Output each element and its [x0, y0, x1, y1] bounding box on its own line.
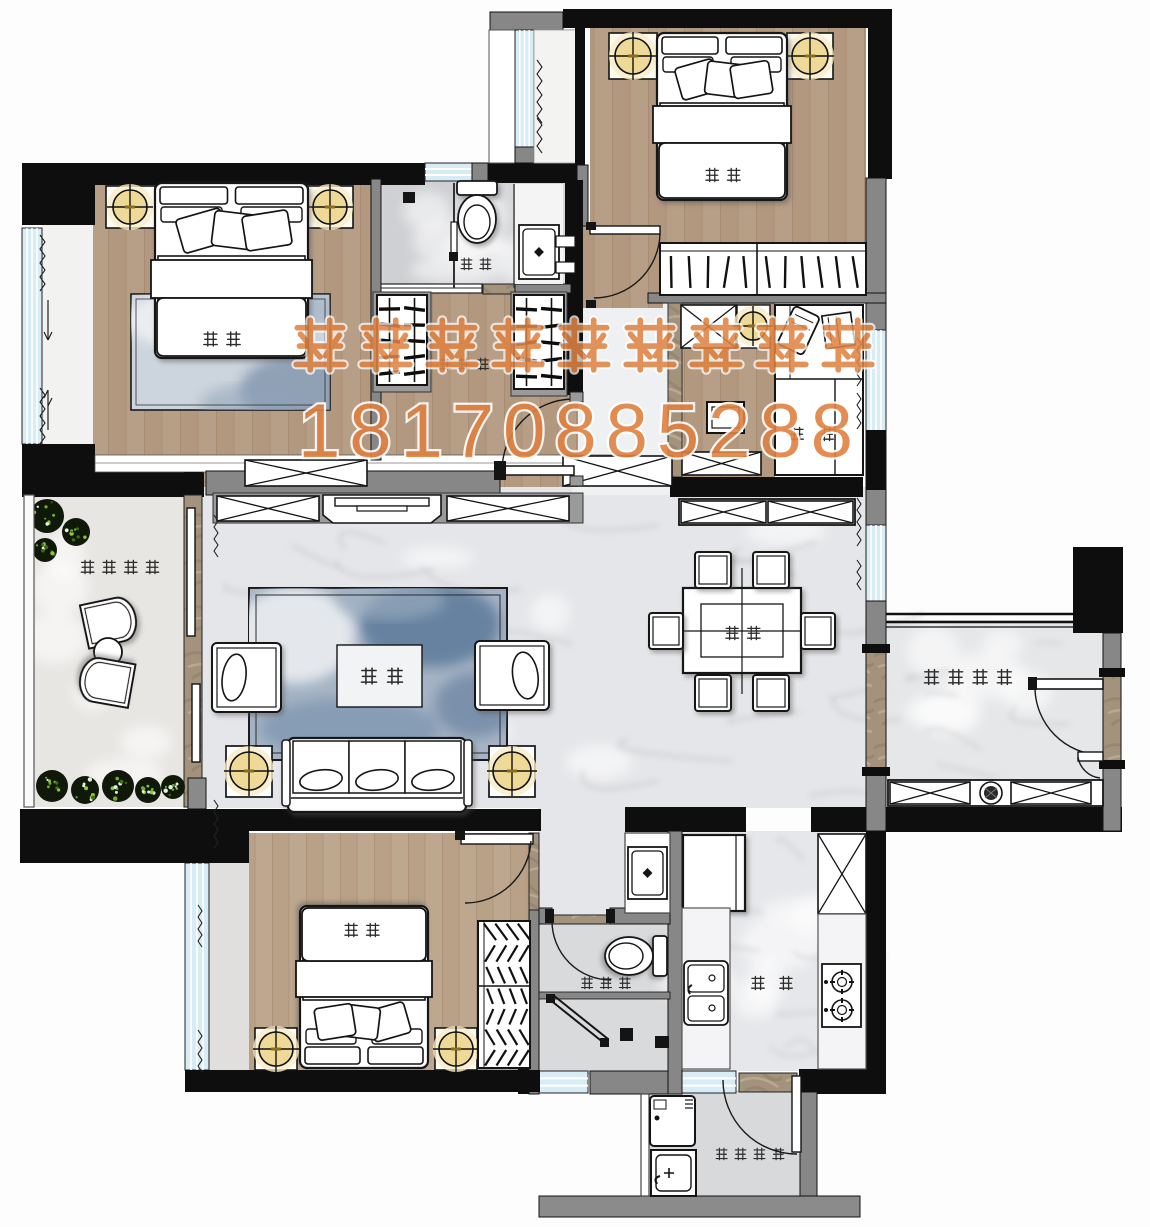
- svg-text:18170885288: 18170885288: [298, 389, 862, 474]
